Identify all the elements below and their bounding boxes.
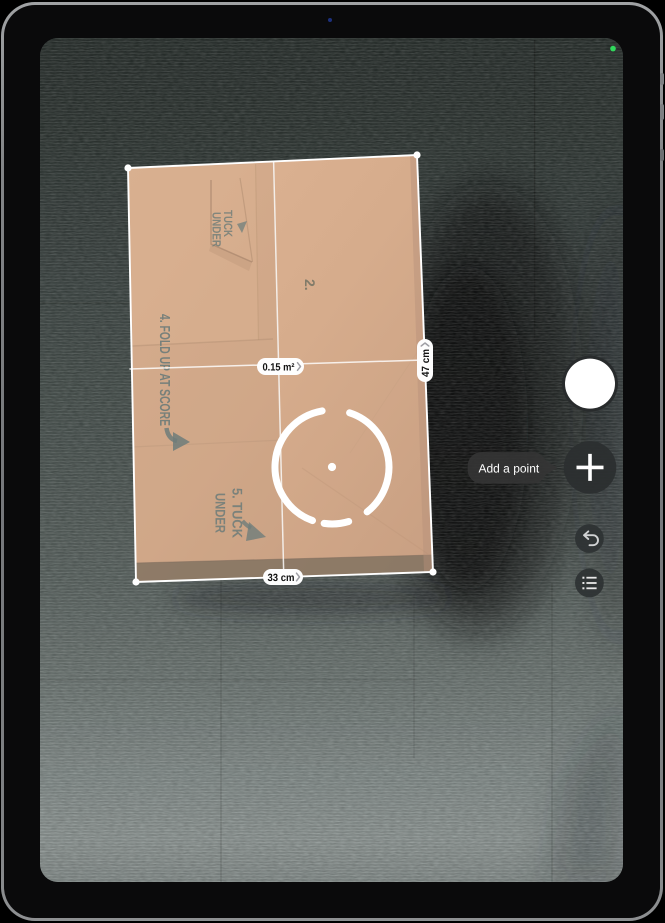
svg-text:4. FOLD UP AT SCORE: 4. FOLD UP AT SCORE [156, 314, 172, 426]
svg-text:2.: 2. [302, 279, 318, 291]
svg-text:UNDER: UNDER [210, 212, 224, 247]
svg-text:0.15 m²: 0.15 m² [263, 362, 295, 374]
svg-text:33 cm: 33 cm [268, 572, 295, 584]
svg-text:5. TUCK: 5. TUCK [230, 488, 246, 538]
svg-text:Add a point: Add a point [479, 461, 540, 475]
svg-text:47 cm: 47 cm [420, 349, 432, 377]
svg-text:UNDER: UNDER [213, 493, 229, 533]
